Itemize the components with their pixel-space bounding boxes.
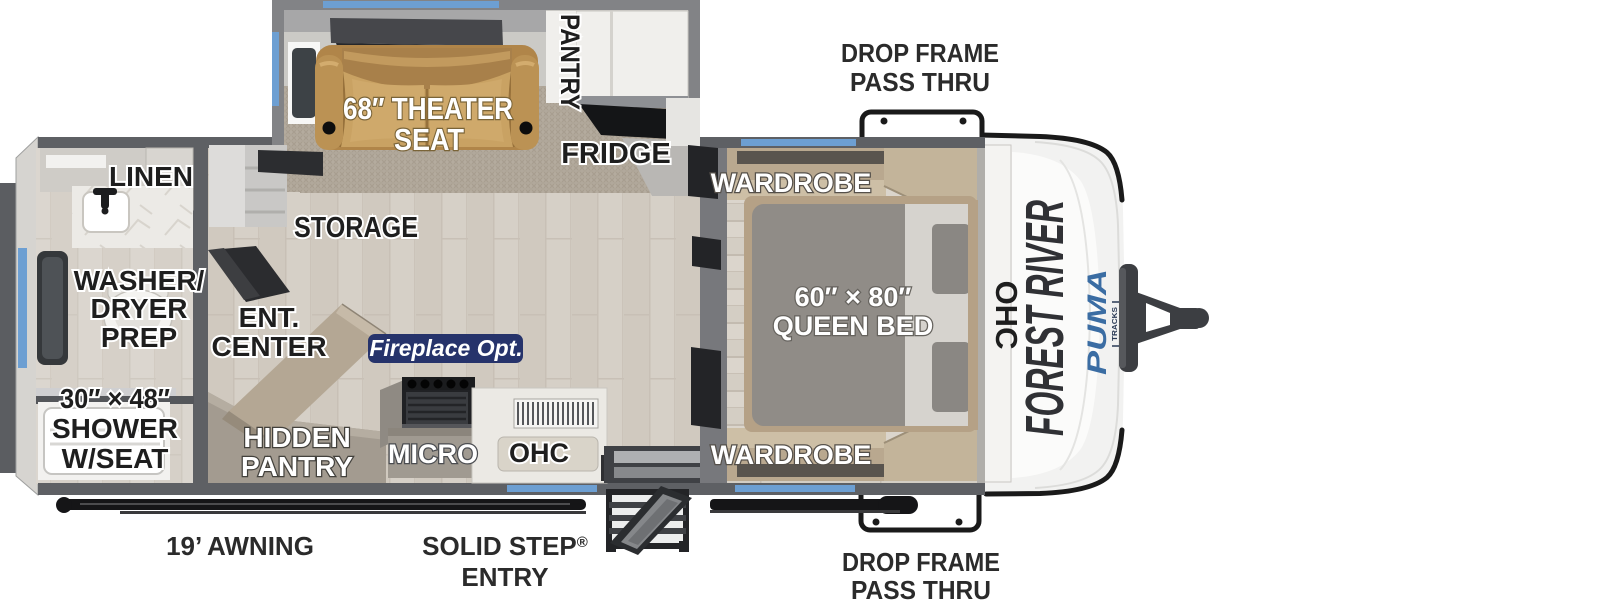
svg-text:DROP FRAME: DROP FRAME [842,547,1000,577]
svg-text:Fireplace Opt.: Fireplace Opt. [369,335,522,361]
svg-text:W/SEAT: W/SEAT [62,443,169,474]
svg-text:SEAT: SEAT [394,122,464,157]
svg-text:OHC: OHC [989,281,1024,350]
svg-text:WARDROBE: WARDROBE [711,168,872,198]
svg-text:PASS THRU: PASS THRU [850,67,990,97]
svg-text:DROP FRAME: DROP FRAME [841,38,999,68]
svg-text:QUEEN BED: QUEEN BED [773,311,934,341]
svg-text:LINEN: LINEN [109,161,193,192]
svg-text:WASHER/: WASHER/ [74,265,205,296]
svg-text:PASS THRU: PASS THRU [851,575,991,605]
svg-text:CENTER: CENTER [211,331,326,362]
svg-text:PREP: PREP [101,322,177,353]
svg-text:STORAGE: STORAGE [294,212,418,244]
svg-text:68″ THEATER: 68″ THEATER [343,91,513,126]
svg-text:FRIDGE: FRIDGE [561,138,671,170]
svg-text:OHC: OHC [509,438,569,468]
svg-text:SOLID STEP®: SOLID STEP® [422,531,588,561]
svg-text:PANTRY: PANTRY [555,14,585,110]
svg-text:PANTRY: PANTRY [241,451,353,482]
svg-text:60″ × 80″: 60″ × 80″ [795,282,912,312]
svg-text:TRACKS: TRACKS [1112,307,1119,341]
svg-text:SHOWER: SHOWER [52,413,178,444]
svg-text:19’ AWNING: 19’ AWNING [166,531,314,561]
svg-text:WARDROBE: WARDROBE [711,440,872,470]
svg-text:MICRO: MICRO [388,439,478,469]
svg-text:ENT.: ENT. [239,302,300,333]
svg-text:ENTRY: ENTRY [461,562,548,592]
svg-text:DRYER: DRYER [91,293,188,324]
svg-text:30″ × 48″: 30″ × 48″ [60,383,170,414]
svg-text:HIDDEN: HIDDEN [243,422,350,453]
svg-text:PUMA: PUMA [1082,269,1112,375]
